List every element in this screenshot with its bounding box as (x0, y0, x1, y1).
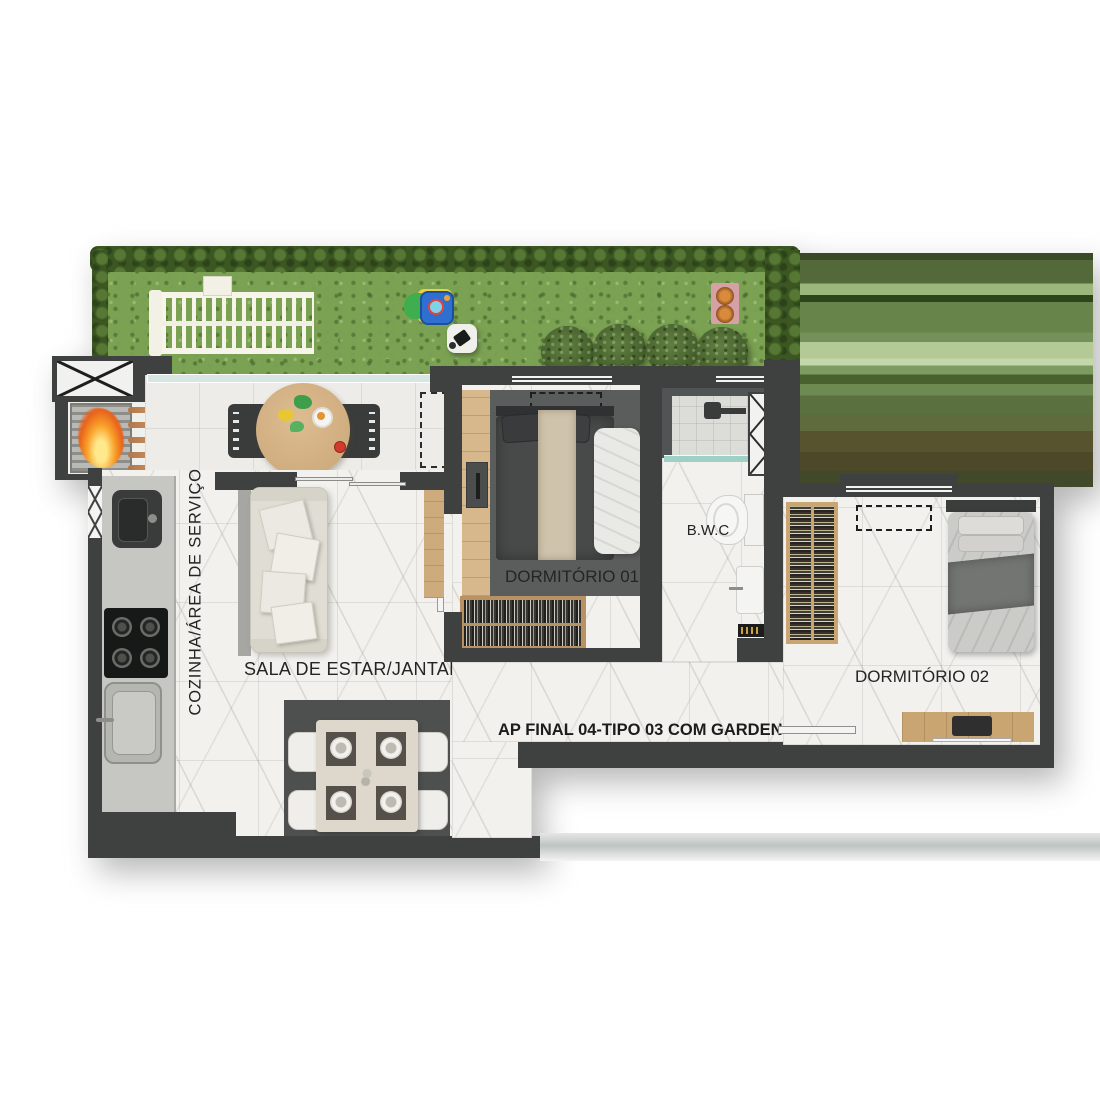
flower-pot-1 (716, 287, 734, 305)
burner-4 (140, 648, 160, 668)
kitchen-cooktop (104, 608, 168, 678)
living-bottom-wall (88, 836, 540, 858)
shower-wall-left (662, 388, 672, 458)
burner-1 (112, 617, 132, 637)
closet-divider (811, 506, 814, 640)
shaft-x-icon (57, 361, 133, 397)
garden-hedge-right (765, 250, 800, 365)
garden-hedge-top (90, 246, 800, 272)
toy-robot-wheel (449, 342, 456, 349)
table-food-greens (294, 395, 312, 409)
bedroom1-label: DORMITÓRIO 01 (505, 567, 635, 587)
bedroom1-wardrobe (460, 596, 586, 650)
floor-plan-image: COZINHA/ÁREA DE SERVIÇO SALA DE ESTAR/JA… (0, 0, 1100, 1100)
bedroom1-left-wall-upper (444, 385, 462, 514)
bed2-throw (948, 553, 1034, 614)
sliding-door-pane-1 (295, 477, 353, 481)
bathroom-label: B.W.C (684, 522, 732, 539)
toy-car (404, 287, 454, 325)
plate-3 (330, 791, 352, 813)
flower-pot-2 (716, 305, 734, 323)
table-centerpiece (360, 768, 374, 786)
plan-title: AP FINAL 04-TIPO 03 COM GARDEN (498, 721, 774, 740)
fence-rail-mid (152, 321, 314, 326)
bwc-vanity (736, 566, 764, 614)
burner-3 (112, 648, 132, 668)
wood-door-handle (466, 462, 488, 508)
chair-slats (233, 412, 239, 450)
plate-4 (380, 791, 402, 813)
living-label: SALA DE ESTAR/JANTAR (244, 659, 460, 680)
sink2-faucet (96, 718, 114, 722)
sofa-cushion-4 (271, 601, 318, 644)
sofa-armrest-top (251, 488, 327, 501)
toy-robot (447, 324, 477, 353)
corridor-bottom-wall (518, 742, 1054, 768)
bedroom1-right-wall (640, 385, 662, 662)
plate-1 (330, 737, 352, 759)
toy-car-dot1 (428, 299, 444, 315)
dining-table (316, 720, 418, 832)
fence-rail-top (152, 292, 314, 298)
terrace-round-table (256, 383, 350, 477)
terrace-glass-railing (147, 374, 435, 383)
garden-mat (711, 283, 739, 324)
bedroom1-window (512, 374, 612, 384)
shower-head (704, 402, 721, 419)
table-food-leaf (290, 421, 304, 432)
bedroom2-bed (946, 500, 1036, 652)
desk-chair-line (932, 738, 1012, 742)
table-food-lemons (278, 409, 294, 421)
bwc-window (716, 374, 766, 384)
bedroom2-projection-dashed (856, 505, 932, 531)
kitchen-sink-top (112, 490, 162, 548)
living-wood-panel (424, 490, 444, 598)
bedroom2-window (846, 484, 952, 494)
garden-fence (152, 292, 314, 354)
bedroom2-closet (786, 502, 838, 644)
wardrobe-divider (464, 623, 582, 626)
sink2-basin (112, 691, 156, 755)
stretched-hedge-artifact (800, 253, 1093, 487)
bedroom2-left-wall (770, 483, 783, 658)
sink-basin (118, 498, 148, 542)
sink-faucet (148, 514, 157, 523)
chair-slats (369, 412, 375, 450)
vent-x-icon (88, 486, 102, 538)
bedroom1-bottom-wall (444, 648, 662, 662)
bath-mat (738, 624, 764, 637)
sofa (250, 487, 328, 653)
kitchen-sink-bottom (104, 682, 162, 764)
bedroom2-label: DORMITÓRIO 02 (855, 667, 985, 687)
vanity-faucet (729, 587, 743, 590)
dining-chair-tr (416, 732, 448, 772)
sliding-door-pane-2 (349, 482, 406, 486)
handle-slot (476, 473, 480, 499)
table-tomato (334, 441, 346, 453)
bed2-pillow-1 (958, 516, 1024, 535)
toy-car-dot2 (444, 295, 450, 301)
bedroom2-right-wall (1040, 483, 1054, 768)
bed2-headboard (946, 500, 1036, 512)
fence-gate-left (149, 290, 162, 356)
apartment-plan: COZINHA/ÁREA DE SERVIÇO SALA DE ESTAR/JA… (0, 0, 1100, 1100)
dining-chair-br (416, 790, 448, 830)
burner-2 (140, 617, 160, 637)
bath-mat-pattern (741, 627, 761, 634)
plate-2 (380, 737, 402, 759)
bedroom2-door-leaf (778, 726, 856, 734)
bedroom1-white-duvet (594, 428, 640, 554)
kitchen-label: COZINHA/ÁREA DE SERVIÇO (187, 500, 206, 716)
render-smear-band (540, 833, 1100, 861)
table-plate-orange (317, 412, 325, 420)
fence-rail-bottom (152, 348, 314, 354)
bed1-runner (538, 410, 576, 560)
bed2-pillow-2 (958, 535, 1024, 552)
fence-gate-box (203, 276, 232, 296)
kitchen-wall-vent (88, 486, 102, 538)
desk-laptop (952, 716, 992, 736)
